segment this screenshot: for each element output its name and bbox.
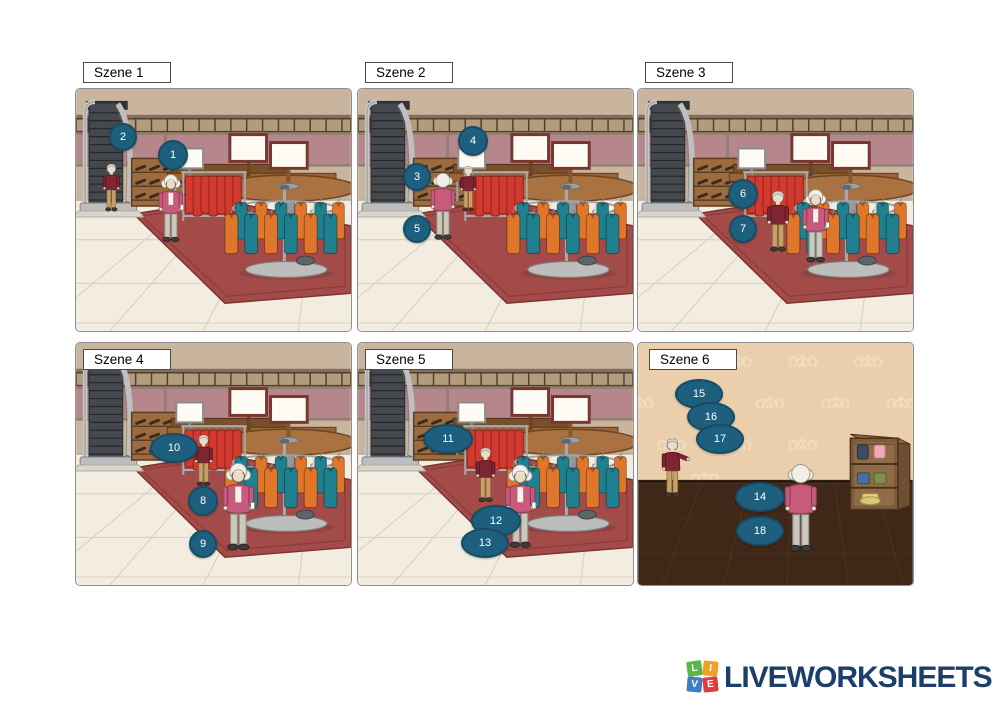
scene-panel-1: Szene 1 21 (75, 88, 352, 332)
scene-label-1: Szene 1 (83, 62, 171, 83)
answer-marker-6[interactable]: 6 (728, 179, 758, 209)
scene-panel-4: Szene 4 1089 (75, 342, 352, 586)
answer-marker-13[interactable]: 13 (461, 528, 509, 558)
scene-illustration-6: 1516171418 (637, 342, 914, 586)
liveworksheets-logo: L I V E LIVEWORKSHEETS (687, 661, 992, 694)
liveworksheets-wordmark: LIVEWORKSHEETS (724, 661, 992, 694)
answer-marker-4[interactable]: 4 (458, 126, 488, 156)
scene-illustration-1: 21 (75, 88, 352, 332)
answer-marker-14[interactable]: 14 (735, 482, 785, 512)
scene-panel-6: Szene 6 1516171418 (637, 342, 914, 586)
scene-panel-2: Szene 2 435 (357, 88, 634, 332)
scene-label-5: Szene 5 (365, 349, 453, 370)
scene-label-6: Szene 6 (649, 349, 737, 370)
scene-label-3: Szene 3 (645, 62, 733, 83)
logo-tile-e: E (702, 676, 718, 692)
answer-marker-17[interactable]: 17 (696, 424, 744, 454)
answer-marker-18[interactable]: 18 (736, 516, 784, 546)
scene-illustration-5: 111213 (357, 342, 634, 586)
answer-marker-7[interactable]: 7 (729, 215, 757, 243)
answer-marker-9[interactable]: 9 (189, 530, 217, 558)
scene-illustration-3: 67 (637, 88, 914, 332)
answer-marker-3[interactable]: 3 (403, 163, 431, 191)
answer-marker-8[interactable]: 8 (188, 486, 218, 516)
answer-marker-2[interactable]: 2 (109, 123, 137, 151)
answer-marker-11[interactable]: 11 (423, 424, 473, 454)
logo-tile-v: V (686, 676, 702, 692)
scene-panel-5: Szene 5 111213 (357, 342, 634, 586)
answer-marker-1[interactable]: 1 (158, 140, 188, 170)
worksheet-page: Szene 1 21 Szene 2 435 Szene 3 (0, 0, 1000, 707)
scene-illustration-4: 1089 (75, 342, 352, 586)
logo-tile-i: I (702, 660, 718, 676)
scene-label-2: Szene 2 (365, 62, 453, 83)
logo-tile-l: L (686, 660, 703, 677)
liveworksheets-logo-icon: L I V E (687, 661, 720, 694)
answer-marker-10[interactable]: 10 (150, 433, 198, 463)
answer-marker-5[interactable]: 5 (403, 215, 431, 243)
scene-illustration-2: 435 (357, 88, 634, 332)
scene-label-4: Szene 4 (83, 349, 171, 370)
scene-panel-3: Szene 3 67 (637, 88, 914, 332)
